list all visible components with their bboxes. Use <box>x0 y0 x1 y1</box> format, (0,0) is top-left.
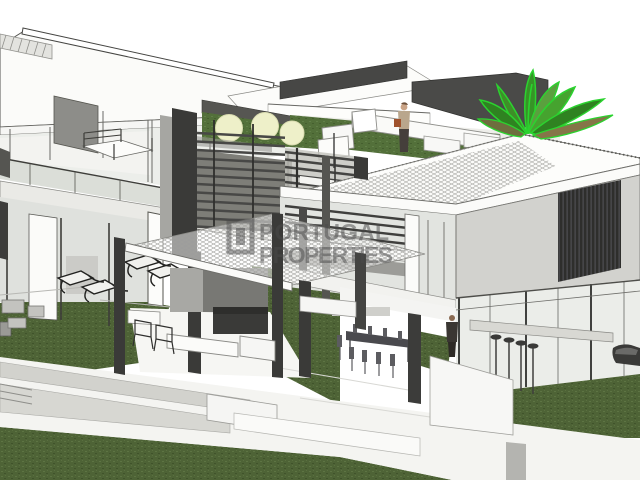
svg-text:PROPERTIES: PROPERTIES <box>259 242 393 268</box>
